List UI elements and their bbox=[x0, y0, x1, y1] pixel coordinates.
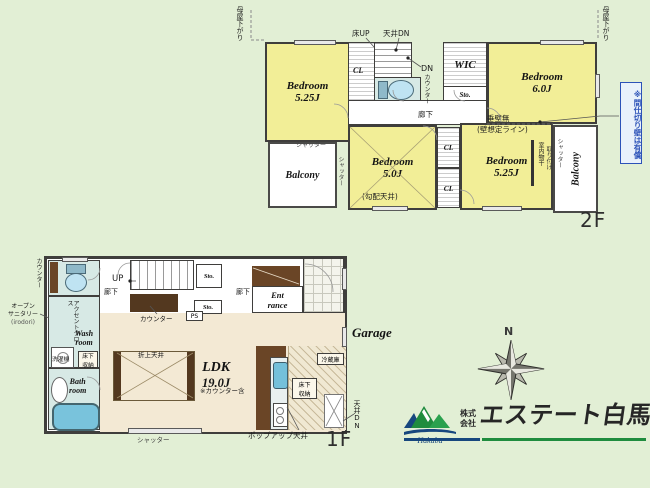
bath-room: Bath room bbox=[48, 368, 100, 430]
washer-label: 洗濯機 bbox=[52, 357, 69, 364]
coffered-ceiling-label: 折上天井 bbox=[138, 352, 164, 359]
bath-room-label-1: Bath bbox=[70, 377, 86, 386]
kitchen-counter-top bbox=[256, 346, 286, 357]
bedroom-525-nw-label: Bedroom 5.25J bbox=[267, 44, 348, 140]
counter-under-stairs bbox=[130, 294, 178, 312]
indoor-drying-label: 室内物干 bbox=[537, 142, 543, 182]
window-2f-4 bbox=[372, 206, 408, 211]
toilet-counter bbox=[50, 262, 58, 293]
underfloor-storage-kitchen-label: 床下 収納 bbox=[293, 379, 316, 398]
closet-mid-1-label: CL bbox=[438, 128, 459, 167]
hall-2f-label: 廊下 bbox=[418, 111, 433, 120]
room-size: 6.0J bbox=[532, 83, 551, 95]
kitchen-sink-icon bbox=[273, 362, 288, 389]
uf2: 収納 bbox=[298, 389, 310, 398]
open-sanitary-3: (irodori) bbox=[11, 319, 35, 326]
underfloor-storage-kitchen: 床下 収納 bbox=[292, 378, 317, 399]
room-name: Bedroom bbox=[521, 71, 563, 83]
ldk-name: LDK bbox=[202, 360, 230, 375]
window-2f-5 bbox=[482, 206, 522, 211]
entrance-room: Ent rance bbox=[252, 286, 303, 313]
company-logo: Hakuba 株式 会社 エステート白馬 bbox=[402, 396, 648, 448]
bedroom-60-label: Bedroom 6.0J bbox=[489, 44, 595, 122]
shutter-label-1f: シャッター bbox=[137, 437, 170, 444]
fridge-label: 冷蔵庫 bbox=[318, 354, 343, 364]
kitchen-counter bbox=[256, 346, 270, 430]
bath-vanity-icon bbox=[51, 377, 68, 403]
storage-1f-top: Sto. bbox=[196, 264, 222, 288]
balcony-left: Balcony bbox=[268, 142, 337, 208]
logo-prefix-1: 株式 bbox=[460, 409, 476, 418]
room-size: 5.0J bbox=[383, 168, 402, 180]
bedroom-60: Bedroom 6.0J bbox=[487, 42, 597, 124]
window-2f-2 bbox=[540, 40, 584, 45]
eaves-note-left: 母屋下がり bbox=[236, 6, 243, 58]
window-1f-2 bbox=[342, 268, 347, 290]
underfloor-storage-wash: 床下 収納 bbox=[78, 351, 98, 368]
closet-mid-2-label: CL bbox=[438, 169, 459, 207]
open-sanitary-1: オープン bbox=[11, 303, 35, 310]
ldk-counter-note: ※カウンター含 bbox=[200, 388, 244, 395]
underfloor-storage-wash-label: 床下 収納 bbox=[79, 352, 97, 367]
shutter-label-balcony-left-v: シャッター bbox=[337, 156, 343, 200]
dn-label: DN bbox=[421, 64, 433, 73]
coffered-rail-right bbox=[187, 352, 194, 400]
fridge-box: 冷蔵庫 bbox=[317, 353, 344, 365]
bath-room-label: Bath room bbox=[69, 377, 86, 395]
logo-underline-green bbox=[482, 438, 646, 441]
toilet-1f bbox=[48, 260, 100, 296]
bedroom-525-nw: Bedroom 5.25J bbox=[265, 42, 350, 142]
shoe-cabinet bbox=[252, 266, 300, 286]
uf1: 床下 bbox=[82, 351, 94, 360]
wic-label: WIC bbox=[444, 43, 486, 87]
garage-label: Garage bbox=[352, 326, 392, 341]
window-1f-south bbox=[128, 428, 202, 434]
window-2f-1 bbox=[294, 40, 336, 45]
window-1f-1 bbox=[62, 257, 88, 262]
indoor-drying-label-2: 取り付け bbox=[545, 146, 551, 180]
accent-cloth-label: アクセントクロス bbox=[66, 300, 78, 346]
shutter-label-balcony-right: シャッター bbox=[556, 138, 562, 184]
sloped-ceiling-note: (勾配天井) bbox=[362, 193, 398, 202]
uf2: 収納 bbox=[82, 360, 94, 369]
toilet-bowl-icon bbox=[65, 273, 87, 292]
room-name: Bedroom bbox=[486, 155, 528, 167]
room-name: Bedroom bbox=[287, 80, 329, 92]
window-2f-3 bbox=[595, 74, 600, 98]
open-sanitary-note: オープン サニタリー (irodori) bbox=[8, 303, 38, 326]
pipe-space-label: PS bbox=[187, 312, 202, 320]
counter-label-2f: カウンター bbox=[423, 74, 429, 104]
partition-wall-paid-note: ※間仕切り壁は有償 bbox=[620, 82, 642, 164]
entrance-label-1: Ent bbox=[271, 290, 284, 300]
pipe-space: PS bbox=[186, 311, 203, 321]
logo-underline-blue bbox=[404, 438, 480, 441]
floor-1-label: 1F bbox=[326, 428, 352, 451]
floor-up-label: 床UP bbox=[352, 30, 370, 39]
walk-in-closet: WIC bbox=[443, 42, 487, 88]
shutter-label-balcony-left: シャッター bbox=[296, 143, 326, 150]
compass-rose: N bbox=[472, 326, 554, 402]
closet-mid-2: CL bbox=[437, 168, 460, 208]
stove-icon bbox=[273, 403, 288, 427]
toilet-tank-icon bbox=[378, 81, 388, 99]
hall-1f-left-label: 廊下 bbox=[104, 288, 118, 296]
uf1: 床下 bbox=[298, 380, 310, 389]
up-label: UP bbox=[112, 275, 123, 285]
closet-2f-north-label: CL bbox=[353, 66, 363, 75]
stairs-1f bbox=[130, 260, 194, 290]
bathtub-icon bbox=[52, 403, 100, 431]
compass-star-icon bbox=[473, 338, 549, 402]
floorplan-page: Bedroom 5.25J CL WIC Sto. Bedroom 6.0J 廊… bbox=[0, 0, 650, 488]
floor-2-label: 2F bbox=[580, 209, 606, 232]
logo-company-prefix: 株式 会社 bbox=[460, 409, 476, 429]
compass-north-label: N bbox=[504, 326, 513, 339]
assumed-wall-note: (壁想定ライン) bbox=[477, 126, 528, 135]
ceiling-down-label-1f: 天井DN bbox=[353, 400, 360, 432]
toilet-bowl-icon bbox=[388, 80, 414, 100]
hall-1f-mid-label: 廊下 bbox=[236, 288, 250, 296]
counter-label-toilet: カウンター bbox=[35, 258, 41, 300]
counter-label-stairs: カウンター bbox=[140, 316, 173, 323]
burner-icon-1 bbox=[276, 407, 284, 415]
balcony-left-label: Balcony bbox=[270, 144, 335, 206]
garage-door-opening bbox=[342, 327, 347, 347]
no-hanging-wall-note: 垂壁無 bbox=[487, 115, 510, 124]
stairs-2f bbox=[374, 42, 412, 79]
entrance-label-2: rance bbox=[268, 300, 288, 310]
ceiling-down-label-2f: 天井DN bbox=[383, 30, 409, 39]
open-sanitary-2: サニタリー bbox=[8, 311, 38, 318]
room-size: 5.25J bbox=[494, 167, 519, 179]
ladder-structure bbox=[324, 394, 344, 428]
coffered-rail-left bbox=[114, 352, 121, 400]
entrance-label: Ent rance bbox=[253, 287, 302, 312]
logo-company-name: エステート白馬 bbox=[478, 402, 650, 430]
bath-room-label-2: room bbox=[69, 386, 86, 395]
logo-prefix-2: 会社 bbox=[460, 419, 476, 428]
closet-mid-1: CL bbox=[437, 127, 460, 168]
eaves-note-right: 母屋下がり bbox=[602, 6, 609, 58]
burner-icon-2 bbox=[276, 416, 284, 424]
room-name: Bedroom bbox=[372, 156, 414, 168]
indoor-drying-pole bbox=[531, 140, 534, 186]
entrance-porch bbox=[303, 258, 344, 313]
popup-ceiling-label: ポップアップ天井 bbox=[248, 432, 308, 441]
storage-1f-top-label: Sto. bbox=[197, 265, 221, 287]
room-size: 5.25J bbox=[295, 92, 320, 104]
